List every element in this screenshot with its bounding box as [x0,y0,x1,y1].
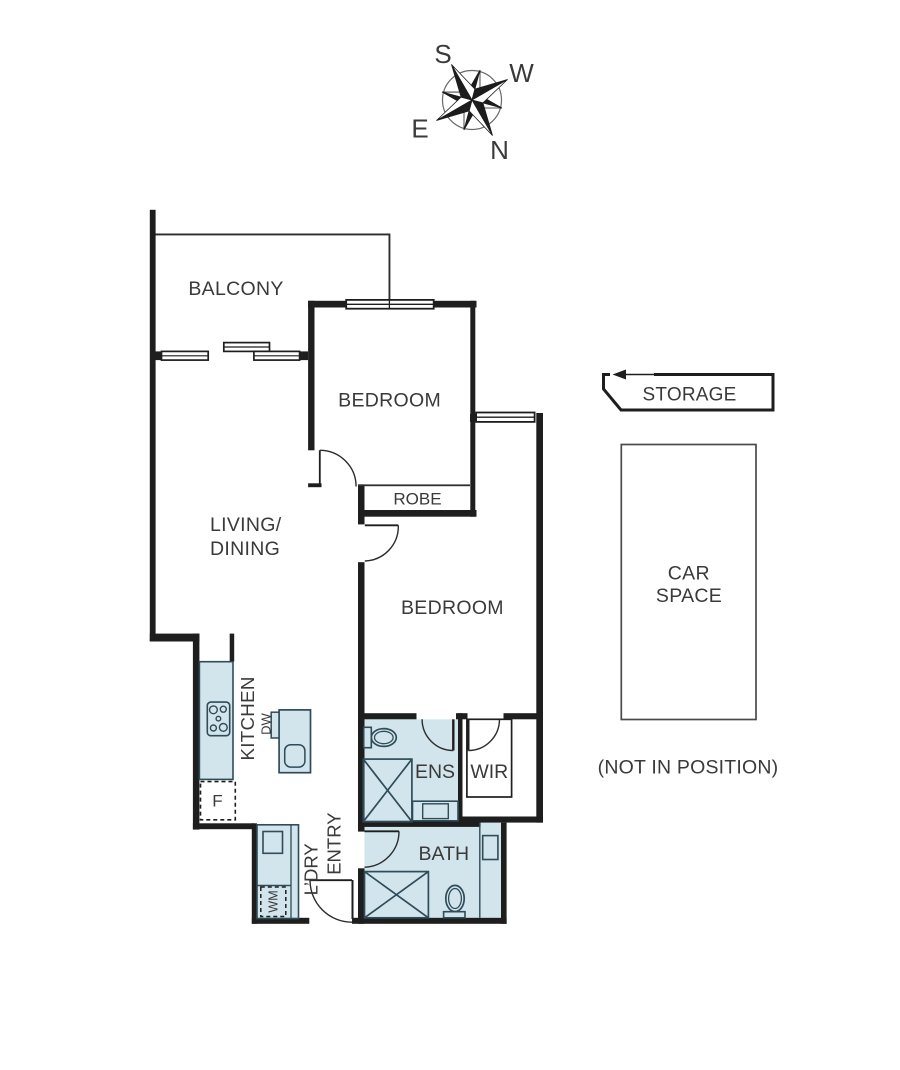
svg-text:DW: DW [258,712,273,734]
svg-text:S: S [434,39,451,69]
svg-text:(NOT IN POSITION): (NOT IN POSITION) [598,757,779,779]
svg-text:BALCONY: BALCONY [188,278,283,300]
svg-text:WM: WM [267,890,281,912]
svg-text:E: E [411,114,428,144]
svg-text:BEDROOM: BEDROOM [401,597,504,619]
svg-text:KITCHEN: KITCHEN [237,676,258,760]
svg-text:ROBE: ROBE [393,489,441,508]
svg-text:SPACE: SPACE [656,585,722,607]
svg-text:W: W [509,58,534,88]
svg-text:BATH: BATH [419,843,470,865]
svg-text:BEDROOM: BEDROOM [338,390,441,412]
svg-text:DINING: DINING [210,538,280,560]
svg-text:ENTRY: ENTRY [324,812,345,874]
svg-text:STORAGE: STORAGE [643,384,737,405]
svg-text:ENS: ENS [415,761,455,783]
svg-text:LIVING/: LIVING/ [210,514,282,536]
svg-text:F: F [212,792,222,811]
svg-text:L’DRY: L’DRY [300,843,321,895]
svg-text:WIR: WIR [470,761,508,783]
svg-text:CAR: CAR [668,563,710,585]
svg-text:N: N [490,135,509,165]
